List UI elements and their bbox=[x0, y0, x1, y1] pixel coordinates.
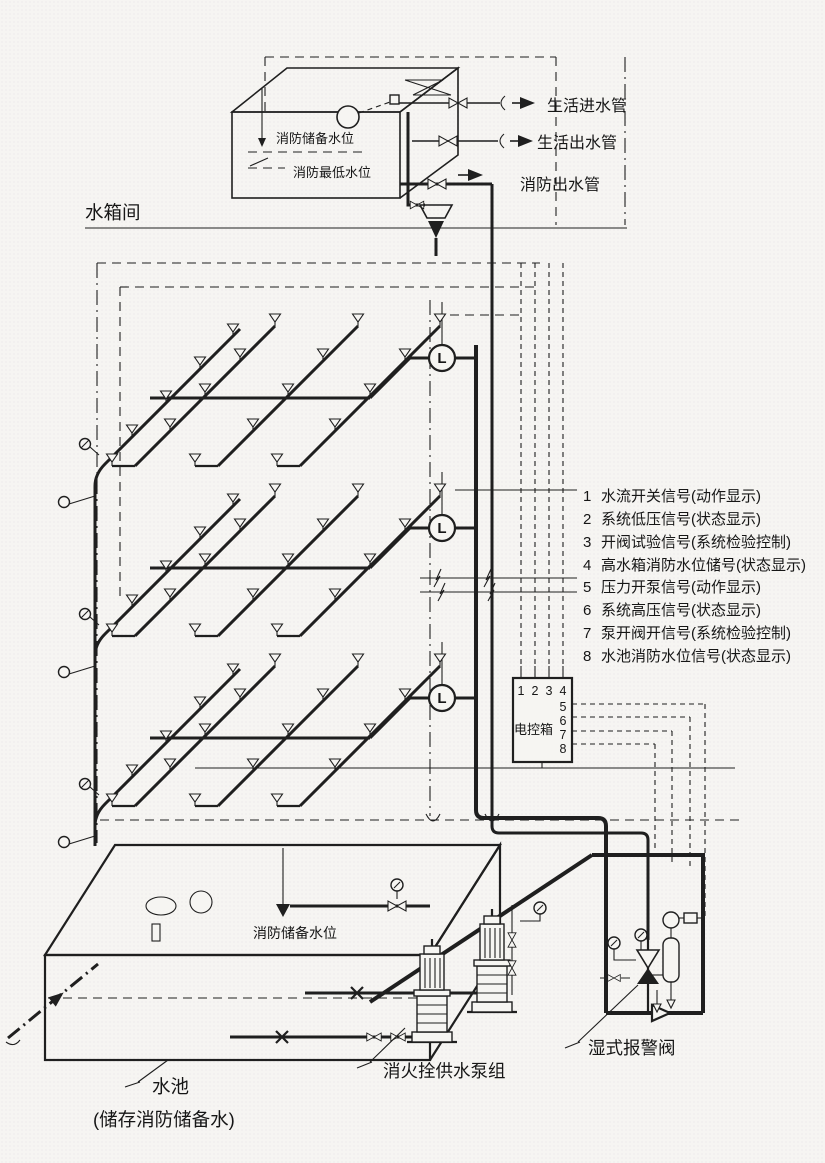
signal-7-text: 泵开阀开信号(系统检验控制) bbox=[601, 625, 791, 642]
signal-3-num: 3 bbox=[583, 534, 591, 551]
sprinkler-floor-2 bbox=[59, 472, 477, 678]
control-box: 1 2 3 4 5 6 7 8 电控箱 bbox=[513, 678, 572, 768]
signal-5-text: 压力开泵信号(动作显示) bbox=[601, 579, 761, 596]
signal-2-text: 系统低压信号(状态显示) bbox=[601, 511, 761, 528]
fire-system-schematic: L L L 1 水流开关信号(动作显示) 2 系统低压信号(状态显示) 3 开阀… bbox=[0, 0, 825, 1163]
tank-min-level: 消防最低水位 bbox=[293, 165, 371, 180]
tank-reserve-level: 消防储备水位 bbox=[276, 131, 354, 146]
terminal-4: 4 bbox=[560, 684, 567, 698]
signal-2-num: 2 bbox=[583, 511, 591, 528]
flow-switch-3: L bbox=[429, 685, 455, 711]
domestic-inlet-label: 生活进水管 bbox=[547, 97, 627, 115]
signal-1-text: 水流开关信号(动作显示) bbox=[601, 488, 761, 505]
signal-8-num: 8 bbox=[583, 648, 591, 665]
floors-boundary bbox=[97, 263, 740, 843]
pool-note: (储存消防储备水) bbox=[93, 1109, 235, 1130]
control-box-label: 电控箱 bbox=[514, 722, 553, 737]
domestic-outlet-pipe bbox=[412, 134, 533, 148]
terminal-2: 2 bbox=[532, 684, 539, 698]
signal-5-num: 5 bbox=[583, 579, 591, 596]
pool-level-marker bbox=[276, 848, 430, 917]
flow-switch-letter: L bbox=[437, 690, 446, 707]
flow-switch-letter: L bbox=[437, 520, 446, 537]
signal-8-text: 水池消防水位信号(状态显示) bbox=[601, 648, 791, 665]
flow-switch-letter: L bbox=[437, 350, 446, 367]
terminal-5: 5 bbox=[560, 700, 567, 714]
tank-room-label: 水箱间 bbox=[85, 202, 141, 223]
signal-6-num: 6 bbox=[583, 602, 591, 619]
pool-reserve-level: 消防储备水位 bbox=[253, 925, 337, 941]
domestic-outlet-label: 生活出水管 bbox=[537, 134, 617, 152]
fire-protection-diagram-page: L L L 1 水流开关信号(动作显示) 2 系统低压信号(状态显示) 3 开阀… bbox=[0, 0, 825, 1163]
wet-alarm-valve-icon bbox=[637, 940, 659, 1013]
terminal-6: 6 bbox=[560, 714, 567, 728]
terminal-1: 1 bbox=[518, 684, 525, 698]
fire-outlet-pipe bbox=[400, 169, 492, 189]
terminal-8: 8 bbox=[560, 742, 567, 756]
sprinkler-floor-3 bbox=[59, 642, 477, 848]
terminal-3: 3 bbox=[546, 684, 553, 698]
signal-4-text: 高水箱消防水位储号(状态显示) bbox=[601, 557, 806, 574]
alarm-valve-label: 湿式报警阀 bbox=[588, 1038, 676, 1058]
signal-legend: 1 水流开关信号(动作显示) 2 系统低压信号(状态显示) 3 开阀试验信号(系… bbox=[583, 488, 806, 665]
pump-group-label: 消火拴供水泵组 bbox=[383, 1061, 506, 1081]
vent-icon bbox=[405, 80, 451, 95]
signal-4-num: 4 bbox=[583, 557, 591, 574]
fire-outlet-label: 消防出水管 bbox=[520, 176, 600, 194]
pool-label: 水池 bbox=[152, 1076, 189, 1097]
pool-inlet-pipe bbox=[6, 964, 98, 1045]
sprinkler-floor-1 bbox=[59, 302, 477, 508]
signal-7-num: 7 bbox=[583, 625, 591, 642]
retard-chamber-icon bbox=[648, 912, 697, 1012]
flow-switch-1: L bbox=[429, 345, 455, 371]
signal-1-num: 1 bbox=[583, 488, 591, 505]
terminal-7: 7 bbox=[560, 728, 567, 742]
signal-6-text: 系统高压信号(状态显示) bbox=[601, 602, 761, 619]
flow-switch-2: L bbox=[429, 515, 455, 541]
signal-3-text: 开阀试验信号(系统检验控制) bbox=[601, 534, 791, 551]
